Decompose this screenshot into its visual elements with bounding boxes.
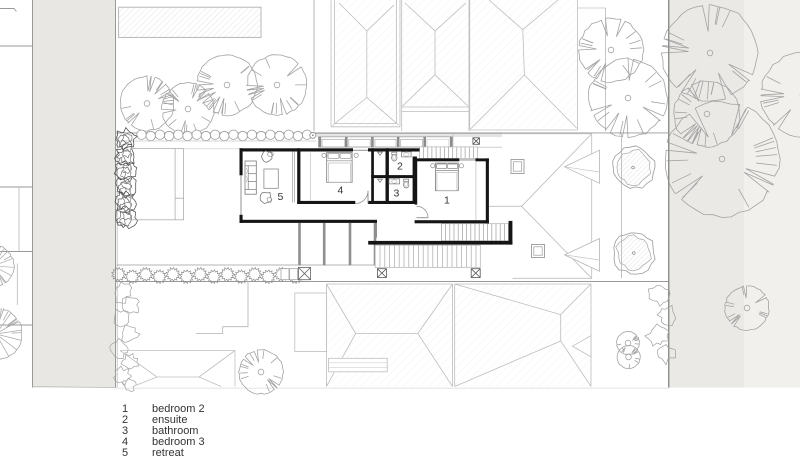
svg-text:5: 5 — [122, 447, 128, 459]
svg-text:3: 3 — [394, 188, 400, 200]
svg-text:5: 5 — [278, 191, 284, 203]
svg-text:retreat: retreat — [152, 447, 184, 459]
svg-text:2: 2 — [397, 161, 403, 173]
svg-text:4: 4 — [338, 185, 344, 197]
svg-text:1: 1 — [444, 195, 450, 207]
